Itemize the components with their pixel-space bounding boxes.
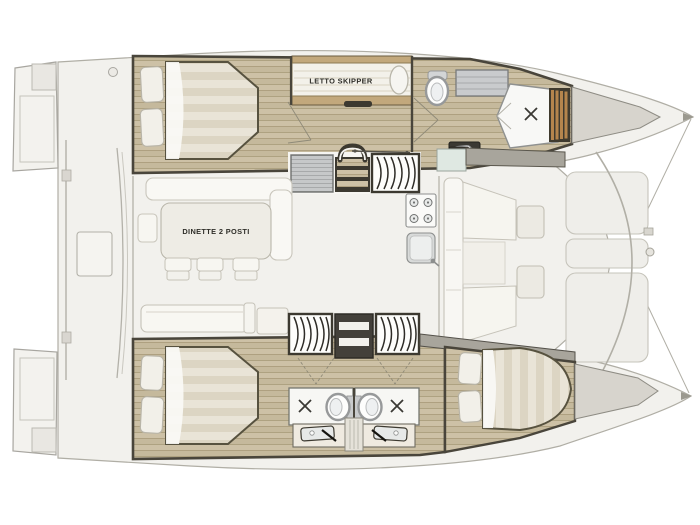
pillow [458,390,482,422]
swim-platform-starboard [13,349,57,455]
sofa [141,305,248,332]
staircase-icon [372,154,419,192]
sofa-armrest [244,303,255,333]
davit-fitting [62,170,71,181]
pillow [140,108,164,146]
step-handle [344,101,372,107]
trampoline-panel [566,239,648,268]
teak-grating [549,88,570,142]
deck-winch [109,68,118,77]
davit-fitting [62,332,71,343]
settee-back-right [270,190,292,260]
locker-column [345,418,363,451]
sink-icon [363,424,415,447]
dinette-chair [165,258,191,280]
cockpit-table [77,232,112,276]
staircase-icon [289,314,332,354]
swim-platform-port [13,62,58,171]
galley-sink-icon [407,233,439,266]
companionway-port [288,146,421,194]
sink-icon [293,424,345,447]
shower-port [497,84,558,148]
pillow [458,352,482,384]
pillow [140,396,164,433]
bed-sheet [166,347,184,444]
floor-plan-canvas: LETTO SKIPPER [0,0,700,525]
pillow [140,355,164,390]
deck-hatch [291,155,333,192]
ottoman [517,206,544,238]
dinette-label: DINETTE 2 POSTI [182,227,249,236]
ottoman [517,266,544,298]
trampoline [566,152,654,383]
beam-fitting-ring [646,248,654,256]
bathroom-starboard-aft [289,388,354,425]
bed-sheet [483,350,496,428]
trampoline-panel [566,172,648,234]
glass-door [437,149,466,171]
stove-icon [406,194,436,227]
settee-bench-left [138,214,157,242]
catamaran-floor-plan: LETTO SKIPPER [0,0,700,525]
cockpit-bench-back [444,178,463,345]
pillow [140,66,164,102]
skipper-bed-label: LETTO SKIPPER [309,77,372,86]
aft-cabin-port [140,62,258,159]
bed-sheet [166,62,184,159]
staircase-icon [376,314,419,354]
pillow [390,66,408,94]
cabinet [456,70,508,96]
toilet-icon [426,71,448,105]
beam-fitting [644,228,653,235]
dinette-chair [197,258,223,280]
shelf-unit [335,314,373,358]
side-table [257,308,288,334]
trampoline-panel [566,273,648,362]
dinette-chair [233,258,259,280]
cockpit-seat-middle [463,242,505,284]
skipper-bed: LETTO SKIPPER [291,56,412,107]
